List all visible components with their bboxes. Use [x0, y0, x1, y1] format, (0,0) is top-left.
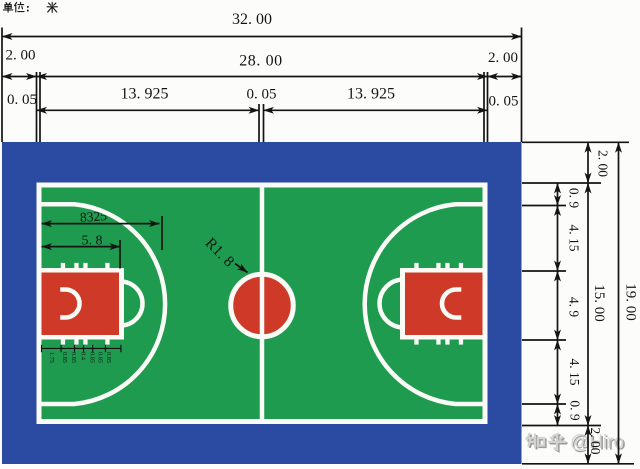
- svg-text:4. 15: 4. 15: [567, 225, 582, 252]
- svg-text:15. 00: 15. 00: [591, 284, 607, 322]
- svg-text:2. 00: 2. 00: [6, 48, 36, 64]
- svg-text:4. 15: 4. 15: [567, 359, 582, 386]
- svg-text:2. 00: 2. 00: [488, 50, 518, 66]
- svg-text:32. 00: 32. 00: [232, 11, 272, 28]
- svg-text:5. 8: 5. 8: [82, 234, 103, 249]
- svg-text:0.85: 0.85: [89, 352, 96, 363]
- svg-text:0.85: 0.85: [70, 352, 77, 363]
- svg-text:28. 00: 28. 00: [239, 53, 283, 70]
- svg-text:13. 925: 13. 925: [347, 86, 395, 103]
- svg-text:0.85: 0.85: [96, 352, 103, 363]
- svg-text:2. 00: 2. 00: [588, 428, 603, 455]
- svg-text:13. 925: 13. 925: [121, 86, 169, 103]
- svg-text:0.4: 0.4: [80, 352, 87, 361]
- svg-text:1.75: 1.75: [48, 352, 55, 363]
- svg-text:0. 05: 0. 05: [489, 94, 519, 110]
- svg-text:0. 9: 0. 9: [567, 188, 582, 209]
- svg-text:0. 9: 0. 9: [568, 400, 583, 421]
- svg-text:4. 9: 4. 9: [567, 297, 582, 318]
- svg-text:2. 00: 2. 00: [596, 150, 611, 177]
- svg-text:19. 00: 19. 00: [623, 283, 639, 321]
- svg-text:0. 05: 0. 05: [7, 92, 37, 108]
- svg-text:0.85: 0.85: [61, 352, 68, 363]
- svg-text:0.85: 0.85: [105, 352, 112, 363]
- svg-text:0. 05: 0. 05: [247, 87, 277, 103]
